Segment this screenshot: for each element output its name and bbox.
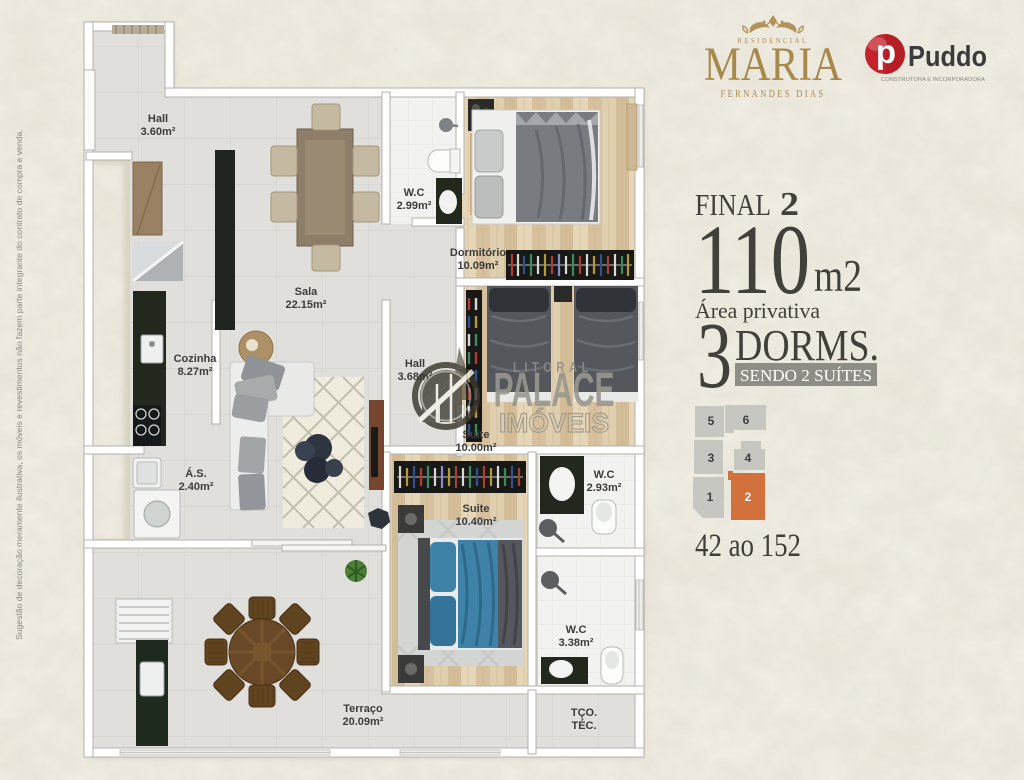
svg-text:Sala: Sala <box>295 286 319 298</box>
svg-text:3.38m²: 3.38m² <box>559 637 594 649</box>
svg-text:2.93m²: 2.93m² <box>587 482 622 494</box>
svg-text:Suíte: Suíte <box>463 429 490 441</box>
svg-text:3: 3 <box>697 304 732 408</box>
svg-text:TÉC.: TÉC. <box>571 719 596 732</box>
svg-text:W.C: W.C <box>566 624 587 636</box>
svg-text:3.60m²: 3.60m² <box>141 126 176 138</box>
svg-text:2: 2 <box>745 490 752 504</box>
svg-text:W.C: W.C <box>404 187 425 199</box>
svg-text:6: 6 <box>743 413 750 427</box>
svg-text:Dormitório: Dormitório <box>450 247 507 259</box>
svg-text:3: 3 <box>708 451 715 465</box>
svg-text:10.40m²: 10.40m² <box>456 516 497 528</box>
svg-text:2.40m²: 2.40m² <box>179 481 214 493</box>
svg-text:IMÓVEIS: IMÓVEIS <box>499 407 609 438</box>
svg-text:TÇO.: TÇO. <box>571 707 597 719</box>
svg-text:Terraço: Terraço <box>343 703 383 715</box>
svg-text:Cozinha: Cozinha <box>174 353 218 365</box>
svg-text:4: 4 <box>745 451 752 465</box>
svg-text:10.09m²: 10.09m² <box>458 260 499 272</box>
svg-text:1: 1 <box>707 490 714 504</box>
svg-text:22.15m²: 22.15m² <box>286 299 327 311</box>
svg-text:m2: m2 <box>814 251 862 301</box>
svg-text:Puddo: Puddo <box>908 41 987 73</box>
svg-text:DORMS.: DORMS. <box>735 321 879 370</box>
svg-text:20.09m²: 20.09m² <box>343 716 384 728</box>
svg-text:CONSTRUTORA E INCORPORADORA: CONSTRUTORA E INCORPORADORA <box>881 77 985 83</box>
svg-text:W.C: W.C <box>594 469 615 481</box>
svg-text:5: 5 <box>708 414 715 428</box>
svg-text:Suite: Suite <box>463 503 490 515</box>
svg-text:FERNANDES DIAS: FERNANDES DIAS <box>721 88 826 100</box>
svg-text:8.27m²: 8.27m² <box>178 366 213 378</box>
svg-text:2.99m²: 2.99m² <box>397 200 432 212</box>
svg-text:Hall: Hall <box>148 113 168 125</box>
svg-text:10.00m²: 10.00m² <box>456 442 497 454</box>
svg-text:p: p <box>876 33 896 70</box>
svg-text:Hall: Hall <box>405 358 425 370</box>
svg-text:Á.S.: Á.S. <box>185 467 206 480</box>
svg-text:Sugestão de decoração merament: Sugestão de decoração meramente ilustrat… <box>14 129 24 640</box>
svg-text:MARIA: MARIA <box>704 38 842 91</box>
svg-text:42 ao 152: 42 ao 152 <box>695 528 801 564</box>
